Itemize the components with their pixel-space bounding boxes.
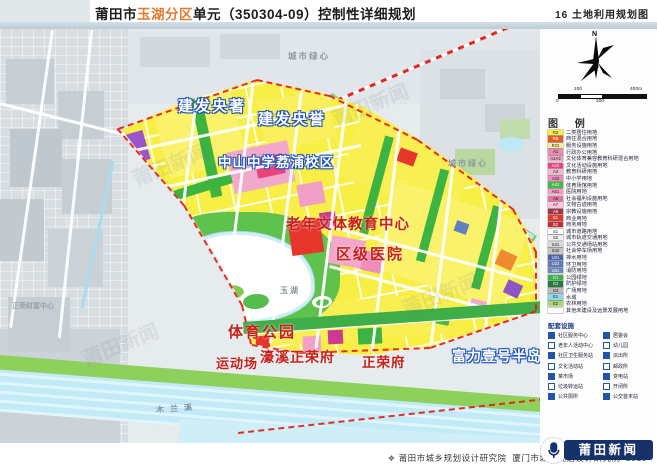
facility-icon <box>603 383 610 390</box>
map-shape <box>358 327 383 344</box>
facility-label: 菜市场 <box>558 373 573 380</box>
legend-color-chip <box>548 308 563 313</box>
facility-item: 公共厕所 <box>548 392 603 402</box>
facility-label: 开闭所 <box>613 383 628 390</box>
legend-color-chip: U22 <box>548 261 563 266</box>
facility-item: 垃圾转运站 <box>548 381 603 391</box>
label-haoxi-zhengrongfu: 濠溪正荣府 <box>260 347 335 367</box>
scale-400m: 400m <box>630 87 642 92</box>
legend-color-chip: B2 <box>548 222 563 227</box>
legend-panel: N 100 400m 0 200 图 例 R2二类居住用地RB商住混合用地R22… <box>540 29 657 443</box>
facility-item: 变电站 <box>603 371 657 381</box>
legend-color-chip: S42 <box>548 248 563 253</box>
map-shape <box>140 37 210 67</box>
legend-color-chip: A6 <box>548 196 563 201</box>
facility-icon <box>603 342 610 349</box>
map-shape <box>220 34 280 59</box>
facility-label: 居委会 <box>613 332 628 339</box>
legend-color-chip: G1 <box>548 275 563 280</box>
legend-color-chip: G2 <box>548 281 563 286</box>
legend-item: A41体育场馆用地 <box>548 182 656 189</box>
map-shape <box>328 330 344 345</box>
legend-color-chip: A2A3 <box>548 156 563 161</box>
facility-label: 垃圾转运站 <box>558 383 583 390</box>
label-zhengrongfu: 正荣府 <box>362 351 406 371</box>
legend-item: E1水域 <box>548 294 656 301</box>
label-jianfa-yangzhu: 建发央著 <box>178 95 246 116</box>
legend-title: 图 例 <box>548 115 592 130</box>
header-left-block <box>0 0 90 22</box>
facility-item: 开闭所 <box>603 381 657 391</box>
map-shape <box>440 69 485 99</box>
legend-item: U31消防用地 <box>548 267 656 274</box>
legend-color-chip: A1 <box>548 149 563 154</box>
legend-item: RB商住混合用地 <box>548 136 656 143</box>
scale-100: 100 <box>574 87 582 92</box>
legend-color-chip: A3 <box>548 169 563 174</box>
sheet-number: 16 <box>555 10 568 21</box>
scale-0: 0 <box>556 99 559 104</box>
legend-item: G3广场用地 <box>548 287 656 294</box>
label-sports-park: 体育公园 <box>228 321 296 342</box>
title-highlight: 玉湖分区 <box>137 7 193 22</box>
facility-icon <box>603 363 610 370</box>
facility-item: 老年人活动中心 <box>548 340 603 350</box>
legend-color-chip: A9 <box>548 209 563 214</box>
facility-item: 邮政所 <box>603 361 657 371</box>
legend-color-chip: U21 <box>548 255 563 260</box>
facility-label: 社区服务中心 <box>558 332 588 339</box>
legend-color-chip: A51 <box>548 189 563 194</box>
legend-item: A3教育科研用地 <box>548 169 656 176</box>
facility-icon <box>548 373 555 380</box>
legend-item: A9宗教设施用地 <box>548 208 656 215</box>
facility-icon <box>603 332 610 339</box>
label-fuli-peninsula: 富力壹号半岛 <box>452 346 542 366</box>
microphone-icon <box>540 437 567 464</box>
title-prefix: 莆田市 <box>95 7 137 22</box>
label-green-heart-2: 城市绿心 <box>448 158 488 169</box>
facility-label: 邮政所 <box>613 363 628 370</box>
facility-icon <box>548 363 555 370</box>
facility-icon <box>603 352 610 359</box>
facility-label: 幼儿园 <box>613 342 628 349</box>
legend-color-chip: R22 <box>548 143 563 148</box>
legend-color-chip: S2 <box>548 235 563 240</box>
legend-color-chip: A22 <box>548 163 563 168</box>
facility-icon <box>603 373 610 380</box>
label-green-heart: 城市绿心 <box>288 50 330 62</box>
legend-color-chip: E2 <box>548 301 563 306</box>
facility-icon <box>548 383 555 390</box>
facility-item: 社区服务中心 <box>548 330 603 340</box>
map-shape <box>296 181 325 207</box>
map-shape <box>500 119 530 139</box>
legend-color-chip: G3 <box>548 288 563 293</box>
facility-label: 公共厕所 <box>558 393 578 400</box>
sheet-label: 16 土地利用规划图 <box>555 6 649 21</box>
facility-label: 老年人活动中心 <box>558 342 593 349</box>
facility-item: 文化活动站 <box>548 361 603 371</box>
legend-item: A7文物古迹用地 <box>548 202 656 209</box>
map-shape <box>558 94 582 99</box>
legend-item-label: 其他未建设及远景发展用地 <box>566 307 628 314</box>
label-elderly-center: 老年文体教育中心 <box>286 213 410 234</box>
facility-item: 幼儿园 <box>603 340 657 350</box>
map-shape <box>146 204 167 226</box>
facility-label: 文化活动站 <box>558 363 583 370</box>
legend-color-chip: E1 <box>548 294 563 299</box>
legend-item: G1公园绿地 <box>548 274 656 281</box>
facility-item: 居委会 <box>603 330 657 340</box>
label-jianfa-yangyu: 建发央誉 <box>258 108 326 129</box>
legend-item: S42社会停车场用地 <box>548 248 656 255</box>
map-shape <box>602 94 647 99</box>
legend-color-chip: A41 <box>548 182 563 187</box>
compass-icon: ❖ <box>388 454 396 463</box>
label-lake: 玉湖 <box>280 285 300 296</box>
page-title: 莆田市玉湖分区单元（350304-09）控制性详细规划 <box>95 3 416 23</box>
facility-label: 公交首末站 <box>613 393 638 400</box>
facility-label: 派出所 <box>613 352 628 359</box>
scale-200: 200 <box>596 99 604 104</box>
legend-color-chip: A7 <box>548 202 563 207</box>
legend-item: G2防护绿地 <box>548 281 656 288</box>
north-arrow-icon <box>574 35 618 87</box>
legend-color-chip: R2 <box>548 130 563 135</box>
label-sports-field: 运动场 <box>216 353 258 372</box>
legend-item: R2二类居住用地 <box>548 129 656 136</box>
facility-icon <box>548 332 555 339</box>
legend-item: A33中小学用地 <box>548 175 656 182</box>
title-suffix: 单元（350304-09）控制性详细规划 <box>193 7 416 22</box>
institute-1: 莆田市城乡规划设计研究院 <box>399 453 507 463</box>
legend-item: A6社会福利设施用地 <box>548 195 656 202</box>
legend-color-chip: S41 <box>548 242 563 247</box>
label-zhengrong-wealth-center: 正荣财富中心 <box>12 301 54 311</box>
legend-color-chip: A33 <box>548 176 563 181</box>
legend-color-chip: B1 <box>548 215 563 220</box>
map-shape <box>535 252 537 310</box>
scale-bar: 100 400m 0 200 <box>550 87 654 105</box>
news-logo-text: 莆田新闻 <box>564 440 653 460</box>
facility-item: 菜市场 <box>548 371 603 381</box>
legend-color-chip: U31 <box>548 268 563 273</box>
facilities-grid: 社区服务中心老年人活动中心社区卫生服务站文化活动站菜市场垃圾转运站公共厕所 居委… <box>548 330 657 402</box>
label-school: 中山中学荔浦校区 <box>218 151 334 171</box>
header-divider <box>0 22 657 29</box>
label-hospital: 区级医院 <box>336 243 404 264</box>
facility-item: 派出所 <box>603 351 657 361</box>
facilities-title: 配套设施 <box>548 320 574 330</box>
legend-item: R22服务设施用地 <box>548 142 656 149</box>
legend-item: U21排水用地 <box>548 254 656 261</box>
legend-item: 其他未建设及远景发展用地 <box>548 307 656 314</box>
facility-item: 社区卫生服务站 <box>548 351 603 361</box>
page: 莆田新闻 莆田新闻 莆田新闻 莆田新闻 建发央著 建发央誉 中山中学荔浦校区 老… <box>0 0 657 470</box>
facility-icon <box>548 393 555 400</box>
map-shape <box>498 137 524 152</box>
legend-items: R2二类居住用地RB商住混合用地R22服务设施用地A1行政办公用地A2A3文化体… <box>548 129 656 314</box>
legend-item: B1商业用地 <box>548 215 656 222</box>
facility-icon <box>548 352 555 359</box>
sheet-name: 土地利用规划图 <box>572 10 649 21</box>
facility-label: 社区卫生服务站 <box>558 352 593 359</box>
facility-item: 公交首末站 <box>603 392 657 402</box>
news-logo: 莆田新闻 <box>540 436 655 464</box>
legend-color-chip: RB <box>548 136 563 141</box>
facility-icon <box>603 393 610 400</box>
facility-label: 变电站 <box>613 373 628 380</box>
legend-item: A22文化活动设施用地 <box>548 162 656 169</box>
legend-item: U22环卫用地 <box>548 261 656 268</box>
north-label: N <box>592 31 597 38</box>
facility-icon <box>548 342 555 349</box>
legend-color-chip: S1 <box>548 229 563 234</box>
header-bar: 莆田市玉湖分区单元（350304-09）控制性详细规划 16 土地利用规划图 <box>0 0 657 22</box>
legend-item: B2商务用地 <box>548 221 656 228</box>
